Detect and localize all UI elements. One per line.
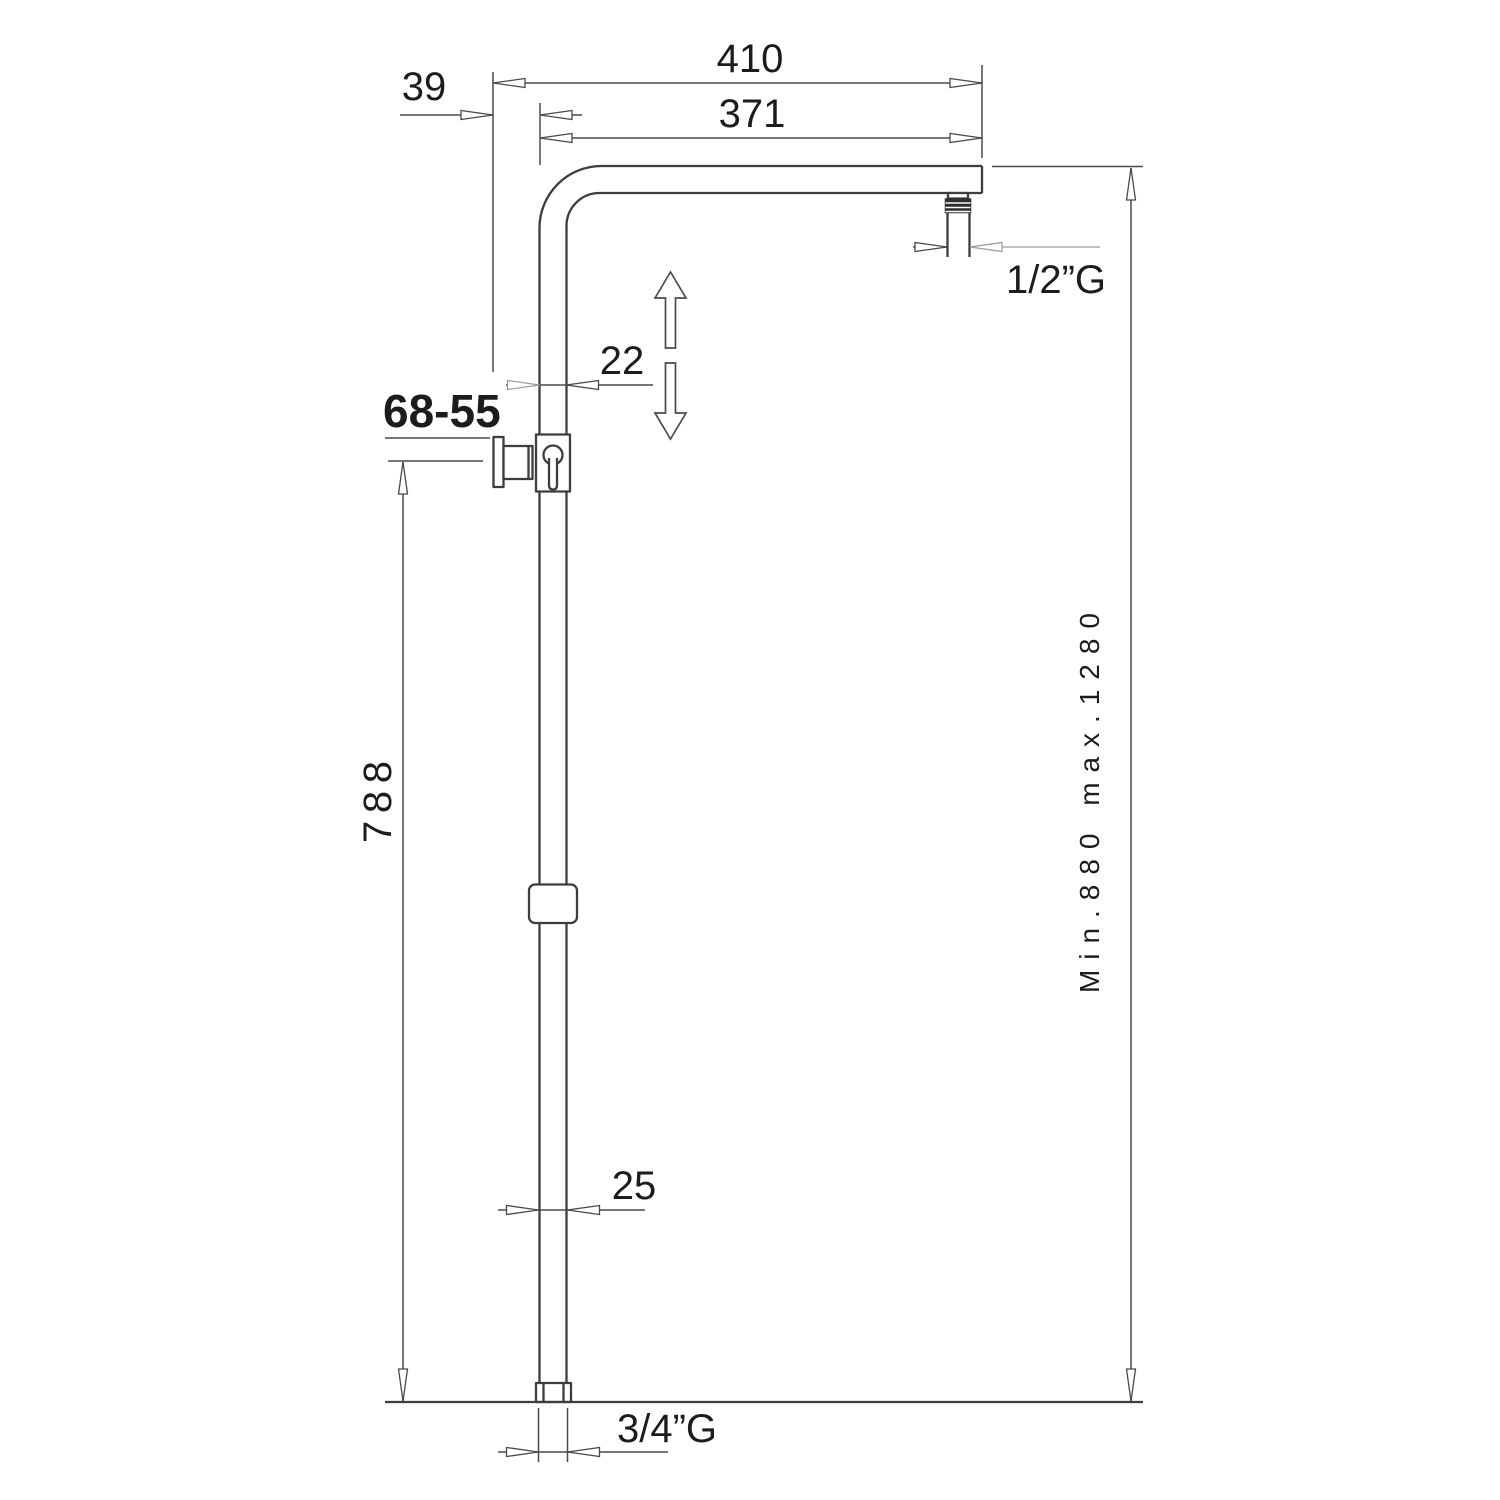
dim-value-410: 410: [717, 37, 784, 81]
model-code-callout: 68-55: [383, 385, 501, 438]
adjust-arrow-up-icon: [655, 272, 686, 348]
outlet-stub: [948, 213, 970, 257]
bracket-lever: [549, 458, 557, 490]
arrowhead: [540, 134, 572, 143]
dim-pipe-width-25: 25: [498, 1164, 656, 1215]
dim-wall-offset-39: 39: [400, 65, 582, 120]
dim-height-range: Min.880 max.1280: [992, 167, 1143, 1402]
dim-value-thread-top: 1/2”G: [1006, 258, 1106, 302]
bottom-nut-body: [536, 1383, 571, 1402]
dim-value-788: 788: [356, 761, 400, 843]
bottom-nut: [536, 1383, 571, 1402]
arrowhead: [540, 111, 572, 120]
dim-thread-top: 1/2”G: [913, 243, 1106, 303]
wall-bracket: [494, 435, 571, 492]
arrowhead: [399, 1369, 408, 1401]
dim-pipe-width-22: 22: [506, 339, 653, 390]
outlet-thread-connector: [945, 193, 971, 257]
drawing-page: 410 39 371 1/2”G 22 68-55: [0, 0, 1500, 1500]
dim-value-thread-bottom: 3/4”G: [617, 1407, 717, 1451]
bracket-wall-flange: [494, 437, 504, 487]
arrowhead: [507, 1448, 539, 1457]
dim-arm-reach-371: 371: [540, 92, 982, 143]
arrowhead: [915, 243, 947, 252]
height-adjust-arrows: [655, 272, 686, 439]
arrowhead: [568, 1448, 600, 1457]
arrowhead: [568, 1206, 600, 1215]
outlet-neck: [948, 193, 968, 199]
shower-column-outline: [385, 166, 1143, 1402]
arrowhead: [950, 79, 982, 88]
model-code-label: 68-55: [383, 385, 501, 437]
arrowhead: [567, 381, 599, 390]
dim-value-39: 39: [402, 65, 447, 109]
dim-top-width-410: 410: [493, 37, 982, 88]
dim-value-371: 371: [719, 92, 786, 136]
arrowhead: [461, 111, 493, 120]
dim-thread-bottom: 3/4”G: [498, 1407, 717, 1462]
adjust-arrow-down-icon: [655, 363, 686, 439]
arrowhead: [970, 243, 1002, 252]
dim-value-25: 25: [612, 1164, 657, 1208]
extension-lines-nut: [539, 1408, 568, 1462]
arrowhead: [1127, 1369, 1136, 1401]
arrowhead: [508, 381, 540, 390]
dim-value-height-range: Min.880 max.1280: [1074, 613, 1105, 993]
shower-column-technical-drawing: 410 39 371 1/2”G 22 68-55: [0, 0, 1500, 1500]
arrowhead: [399, 462, 408, 494]
arrowhead: [1127, 168, 1136, 200]
riser-coupling: [529, 885, 577, 924]
dim-riser-height-788: 788: [356, 461, 483, 1401]
arrowhead: [507, 1206, 539, 1215]
arrowhead: [950, 134, 982, 143]
arrowhead: [493, 79, 525, 88]
dim-value-22: 22: [600, 339, 645, 383]
